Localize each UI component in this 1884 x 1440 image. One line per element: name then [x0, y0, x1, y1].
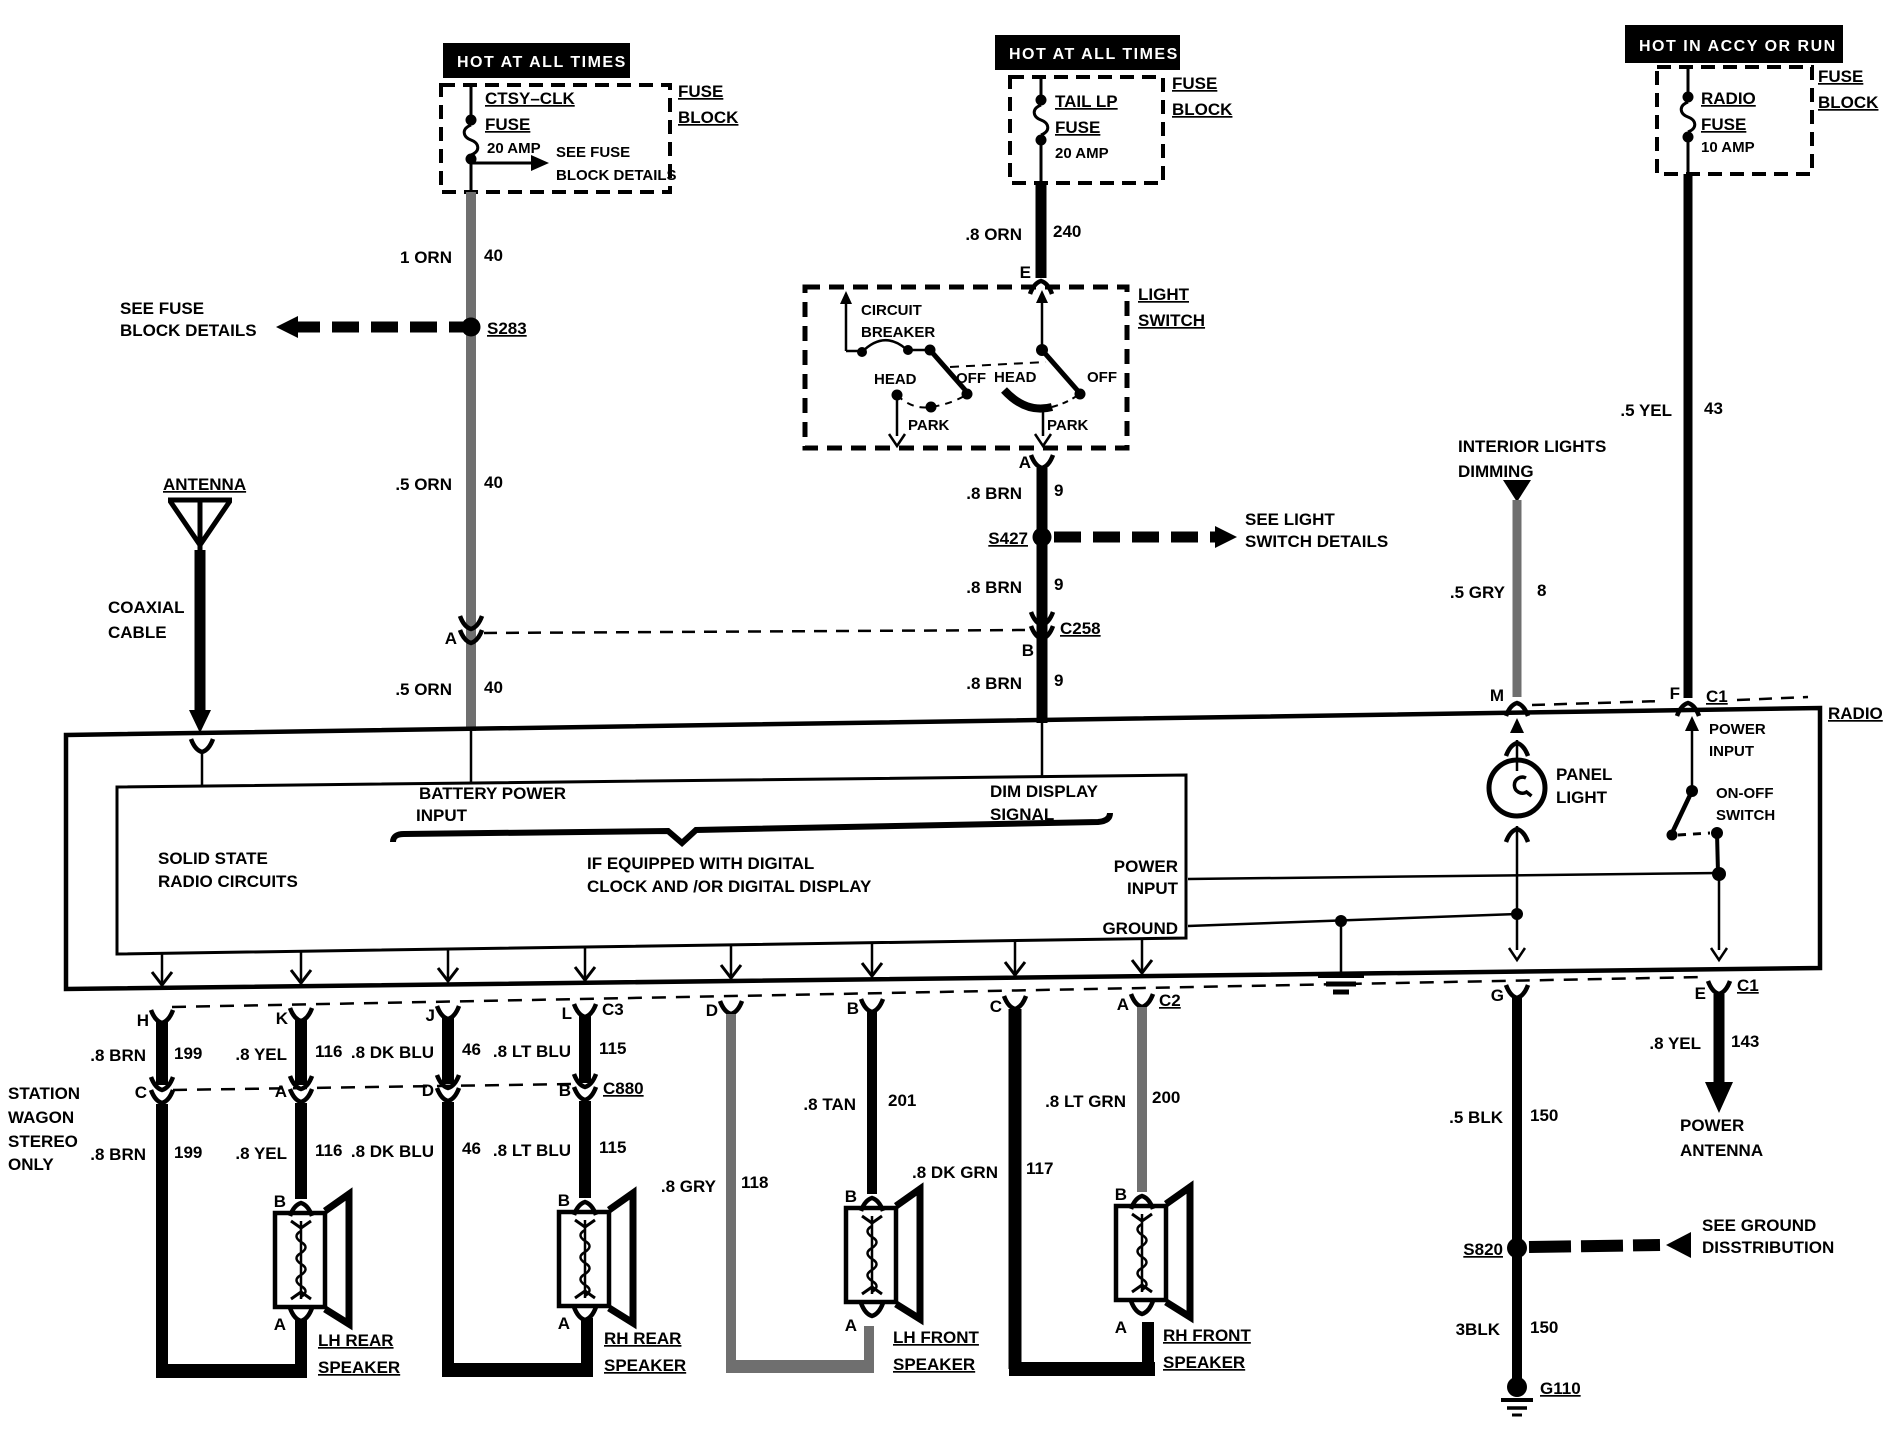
- svg-text:199: 199: [174, 1044, 202, 1063]
- svg-text:40: 40: [484, 678, 503, 697]
- svg-text:B: B: [845, 1187, 857, 1206]
- svg-text:SWITCH: SWITCH: [1716, 807, 1775, 824]
- svg-text:BLOCK: BLOCK: [1818, 93, 1879, 112]
- svg-text:ANTENNA: ANTENNA: [1680, 1141, 1763, 1160]
- svg-text:199: 199: [174, 1143, 202, 1162]
- svg-text:J: J: [426, 1006, 435, 1025]
- svg-text:C258: C258: [1060, 619, 1101, 638]
- svg-text:G110: G110: [1540, 1379, 1581, 1398]
- svg-text:10 AMP: 10 AMP: [1701, 139, 1755, 156]
- svg-text:BLOCK: BLOCK: [1172, 100, 1233, 119]
- svg-text:TAIL LP: TAIL LP: [1055, 92, 1118, 111]
- svg-text:.8 ORN: .8 ORN: [965, 225, 1022, 244]
- svg-text:INPUT: INPUT: [416, 806, 468, 825]
- svg-text:DIM DISPLAY: DIM DISPLAY: [990, 782, 1099, 801]
- svg-text:RADIO: RADIO: [1828, 704, 1883, 723]
- svg-text:CABLE: CABLE: [108, 623, 167, 642]
- svg-text:201: 201: [888, 1091, 916, 1110]
- svg-text:SPEAKER: SPEAKER: [318, 1358, 400, 1377]
- svg-text:118: 118: [741, 1173, 768, 1192]
- svg-text:D: D: [706, 1001, 718, 1020]
- svg-text:PARK: PARK: [908, 417, 950, 434]
- svg-text:SPEAKER: SPEAKER: [893, 1355, 975, 1374]
- svg-text:.8 YEL: .8 YEL: [235, 1045, 287, 1064]
- svg-text:.8 BRN: .8 BRN: [966, 674, 1022, 693]
- svg-text:C1: C1: [1706, 687, 1728, 706]
- svg-text:SEE FUSE: SEE FUSE: [556, 144, 630, 161]
- svg-text:A: A: [1115, 1318, 1127, 1337]
- svg-text:115: 115: [599, 1138, 626, 1157]
- svg-text:A: A: [1117, 995, 1129, 1014]
- svg-text:K: K: [276, 1009, 289, 1028]
- svg-text:.8 BRN: .8 BRN: [90, 1046, 146, 1065]
- svg-text:STATION: STATION: [8, 1084, 80, 1103]
- svg-text:CTSY–CLK: CTSY–CLK: [485, 89, 575, 108]
- svg-text:116: 116: [315, 1141, 342, 1160]
- svg-text:.8 DK BLU: .8 DK BLU: [351, 1043, 434, 1062]
- svg-text:FUSE: FUSE: [1701, 115, 1746, 134]
- svg-text:HOT AT ALL TIMES: HOT AT ALL TIMES: [1009, 46, 1179, 63]
- svg-text:8: 8: [1537, 581, 1546, 600]
- svg-text:POWER: POWER: [1709, 721, 1766, 738]
- svg-text:.5 YEL: .5 YEL: [1620, 401, 1672, 420]
- svg-text:M: M: [1490, 686, 1504, 705]
- svg-text:.8 GRY: .8 GRY: [661, 1177, 717, 1196]
- svg-text:.5 ORN: .5 ORN: [395, 475, 452, 494]
- svg-text:RH FRONT: RH FRONT: [1163, 1326, 1251, 1345]
- svg-text:BLOCK DETAILS: BLOCK DETAILS: [120, 321, 257, 340]
- svg-text:116: 116: [315, 1042, 342, 1061]
- svg-text:RADIO: RADIO: [1701, 89, 1756, 108]
- svg-text:9: 9: [1054, 671, 1063, 690]
- svg-text:ON-OFF: ON-OFF: [1716, 785, 1774, 802]
- svg-text:.8 BRN: .8 BRN: [90, 1145, 146, 1164]
- svg-text:C1: C1: [1737, 976, 1759, 995]
- svg-text:.8 TAN: .8 TAN: [803, 1095, 856, 1114]
- svg-text:STEREO: STEREO: [8, 1132, 78, 1151]
- svg-text:CIRCUIT: CIRCUIT: [861, 302, 922, 319]
- svg-text:.5 ORN: .5 ORN: [395, 680, 452, 699]
- svg-text:43: 43: [1704, 399, 1723, 418]
- svg-text:HEAD: HEAD: [994, 369, 1037, 386]
- svg-text:SPEAKER: SPEAKER: [1163, 1353, 1245, 1372]
- svg-text:ANTENNA: ANTENNA: [163, 475, 246, 494]
- svg-text:SOLID STATE: SOLID STATE: [158, 849, 268, 868]
- svg-text:H: H: [137, 1011, 149, 1030]
- svg-text:SWITCH DETAILS: SWITCH DETAILS: [1245, 532, 1388, 551]
- svg-text:S427: S427: [988, 529, 1028, 548]
- svg-text:150: 150: [1530, 1318, 1558, 1337]
- svg-text:HEAD: HEAD: [874, 371, 917, 388]
- svg-text:COAXIAL: COAXIAL: [108, 598, 185, 617]
- svg-text:S820: S820: [1463, 1240, 1503, 1259]
- svg-text:46: 46: [462, 1040, 481, 1059]
- svg-text:143: 143: [1731, 1032, 1759, 1051]
- svg-text:GROUND: GROUND: [1102, 919, 1178, 938]
- svg-text:OFF: OFF: [956, 370, 986, 387]
- svg-text:ONLY: ONLY: [8, 1155, 54, 1174]
- svg-text:WAGON: WAGON: [8, 1108, 74, 1127]
- svg-text:.5 BLK: .5 BLK: [1449, 1108, 1504, 1127]
- svg-text:C: C: [135, 1083, 147, 1102]
- svg-text:.8 LT BLU: .8 LT BLU: [493, 1042, 571, 1061]
- svg-text:INPUT: INPUT: [1127, 879, 1179, 898]
- svg-text:20 AMP: 20 AMP: [1055, 145, 1109, 162]
- svg-text:1 ORN: 1 ORN: [400, 248, 452, 267]
- svg-text:B: B: [558, 1191, 570, 1210]
- svg-text:FUSE: FUSE: [485, 115, 530, 134]
- svg-text:D: D: [422, 1081, 434, 1100]
- svg-text:9: 9: [1054, 481, 1063, 500]
- svg-text:B: B: [1022, 641, 1034, 660]
- svg-text:.8 YEL: .8 YEL: [1649, 1034, 1701, 1053]
- svg-text:CLOCK AND /OR DIGITAL DISPLAY: CLOCK AND /OR DIGITAL DISPLAY: [587, 877, 872, 896]
- svg-text:A: A: [274, 1315, 286, 1334]
- svg-text:RH REAR: RH REAR: [604, 1329, 681, 1348]
- svg-text:DIMMING: DIMMING: [1458, 462, 1534, 481]
- svg-text:POWER: POWER: [1680, 1116, 1744, 1135]
- svg-text:HOT AT ALL TIMES: HOT AT ALL TIMES: [457, 54, 627, 71]
- svg-text:LH REAR: LH REAR: [318, 1331, 394, 1350]
- svg-text:PANEL: PANEL: [1556, 765, 1612, 784]
- svg-text:46: 46: [462, 1139, 481, 1158]
- svg-text:.8 YEL: .8 YEL: [235, 1144, 287, 1163]
- svg-text:FUSE: FUSE: [1818, 67, 1863, 86]
- svg-text:E: E: [1020, 263, 1031, 282]
- svg-text:150: 150: [1530, 1106, 1558, 1125]
- svg-text:SEE GROUND: SEE GROUND: [1702, 1216, 1816, 1235]
- svg-text:BATTERY POWER: BATTERY POWER: [419, 784, 566, 803]
- svg-text:SEE FUSE: SEE FUSE: [120, 299, 204, 318]
- svg-text:A: A: [558, 1314, 570, 1333]
- svg-text:HOT IN ACCY OR RUN: HOT IN ACCY OR RUN: [1639, 38, 1837, 55]
- svg-text:FUSE: FUSE: [1172, 74, 1217, 93]
- svg-text:240: 240: [1053, 222, 1081, 241]
- svg-text:INPUT: INPUT: [1709, 743, 1754, 760]
- svg-text:B: B: [847, 999, 859, 1018]
- svg-text:.8 BRN: .8 BRN: [966, 578, 1022, 597]
- svg-text:POWER: POWER: [1114, 857, 1178, 876]
- svg-text:.8 DK GRN: .8 DK GRN: [912, 1163, 998, 1182]
- svg-text:FUSE: FUSE: [1055, 118, 1100, 137]
- svg-text:LH FRONT: LH FRONT: [893, 1328, 980, 1347]
- svg-text:DISSTRIBUTION: DISSTRIBUTION: [1702, 1238, 1834, 1257]
- svg-text:C2: C2: [1159, 991, 1181, 1010]
- svg-text:BLOCK DETAILS: BLOCK DETAILS: [556, 167, 677, 184]
- svg-text:C880: C880: [603, 1079, 644, 1098]
- svg-text:SPEAKER: SPEAKER: [604, 1356, 686, 1375]
- svg-text:.8 LT BLU: .8 LT BLU: [493, 1141, 571, 1160]
- svg-text:F: F: [1670, 684, 1680, 703]
- svg-text:.8 BRN: .8 BRN: [966, 484, 1022, 503]
- svg-text:117: 117: [1026, 1159, 1053, 1178]
- svg-text:A: A: [845, 1316, 857, 1335]
- svg-text:3BLK: 3BLK: [1456, 1320, 1501, 1339]
- svg-text:200: 200: [1152, 1088, 1180, 1107]
- svg-text:INTERIOR LIGHTS: INTERIOR LIGHTS: [1458, 437, 1606, 456]
- svg-text:40: 40: [484, 246, 503, 265]
- svg-text:B: B: [274, 1192, 286, 1211]
- svg-text:PARK: PARK: [1047, 417, 1089, 434]
- svg-text:S283: S283: [487, 319, 527, 338]
- svg-text:A: A: [275, 1082, 287, 1101]
- svg-text:SEE LIGHT: SEE LIGHT: [1245, 510, 1335, 529]
- svg-text:RADIO CIRCUITS: RADIO CIRCUITS: [158, 872, 298, 891]
- svg-text:LIGHT: LIGHT: [1138, 285, 1190, 304]
- svg-text:9: 9: [1054, 575, 1063, 594]
- svg-text:40: 40: [484, 473, 503, 492]
- svg-text:A: A: [445, 629, 457, 648]
- svg-text:OFF: OFF: [1087, 369, 1117, 386]
- svg-text:.5 GRY: .5 GRY: [1450, 583, 1506, 602]
- svg-text:G: G: [1491, 986, 1504, 1005]
- svg-text:SWITCH: SWITCH: [1138, 311, 1205, 330]
- svg-text:115: 115: [599, 1039, 626, 1058]
- svg-text:L: L: [562, 1004, 572, 1023]
- svg-text:FUSE: FUSE: [678, 82, 723, 101]
- svg-text:E: E: [1695, 984, 1706, 1003]
- svg-text:20 AMP: 20 AMP: [487, 140, 541, 157]
- svg-text:BREAKER: BREAKER: [861, 324, 935, 341]
- svg-text:LIGHT: LIGHT: [1556, 788, 1608, 807]
- svg-text:C3: C3: [602, 1000, 624, 1019]
- svg-text:.8 DK BLU: .8 DK BLU: [351, 1142, 434, 1161]
- svg-text:IF EQUIPPED WITH DIGITAL: IF EQUIPPED WITH DIGITAL: [587, 854, 814, 873]
- svg-text:B: B: [1115, 1185, 1127, 1204]
- svg-text:.8 LT GRN: .8 LT GRN: [1045, 1092, 1126, 1111]
- svg-text:C: C: [990, 997, 1002, 1016]
- svg-text:BLOCK: BLOCK: [678, 108, 739, 127]
